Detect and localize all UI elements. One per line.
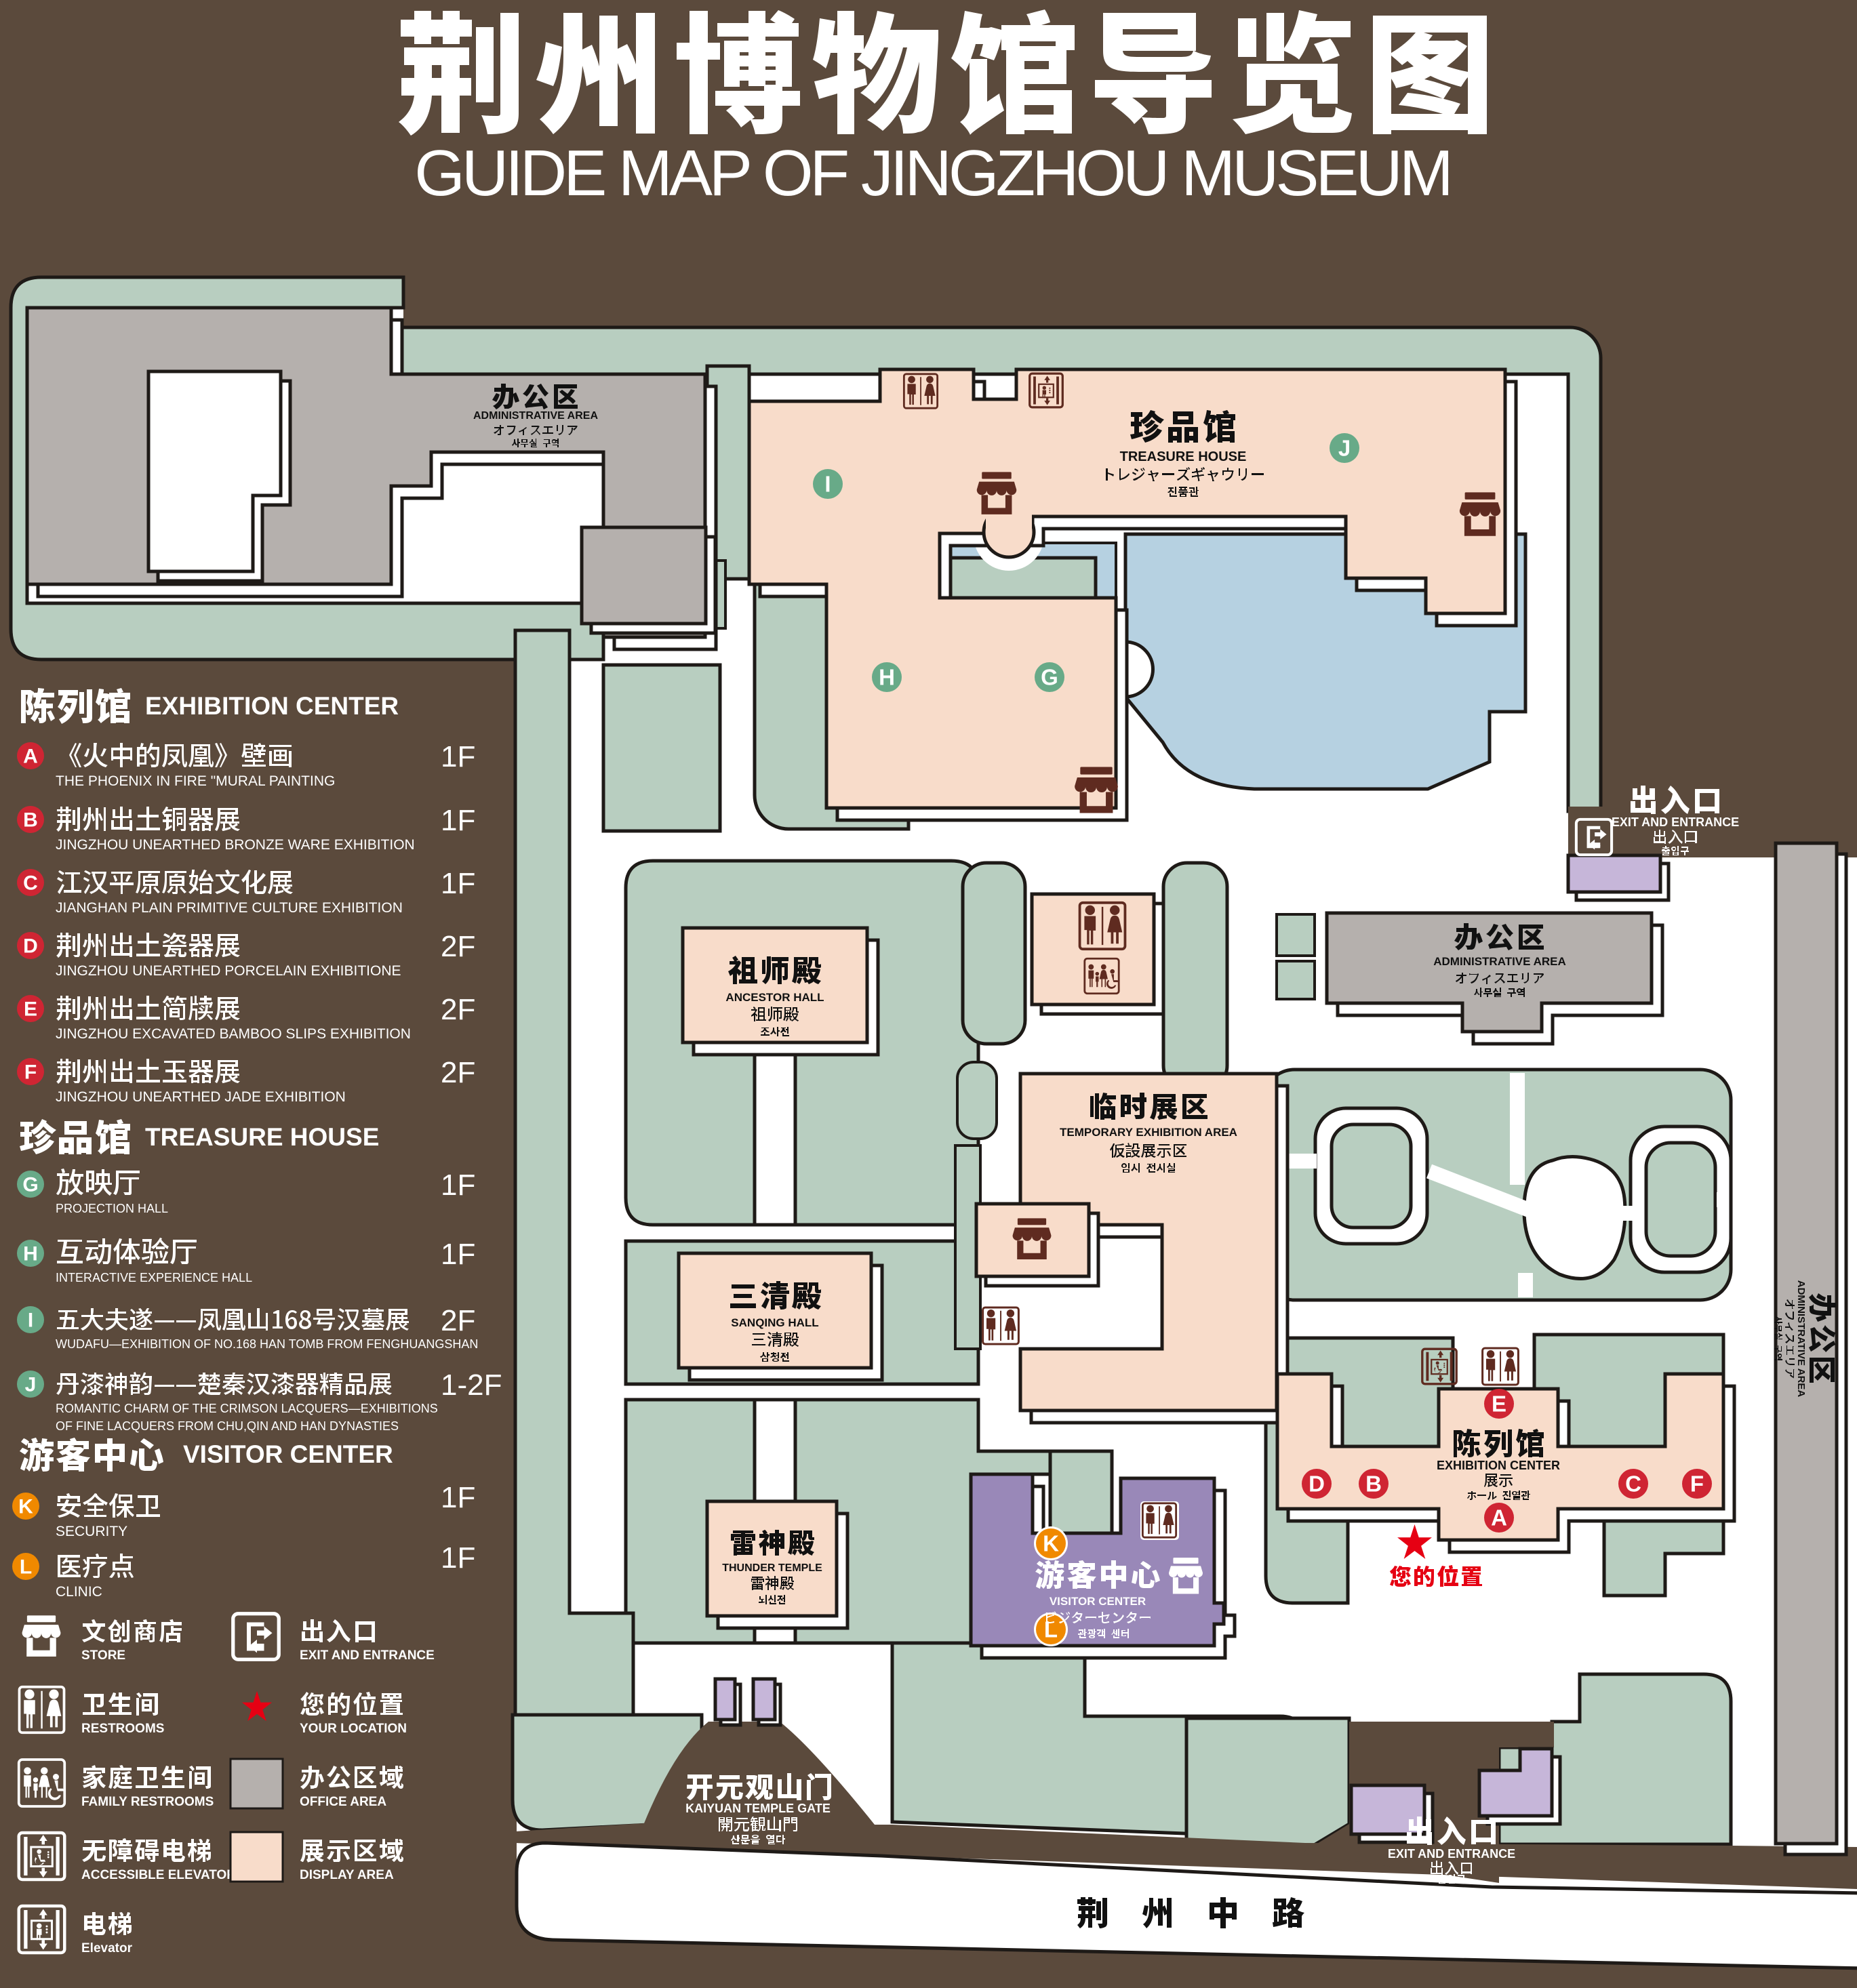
svg-text:I: I: [28, 1310, 33, 1332]
svg-text:ACCESSIBLE ELEVATOR: ACCESSIBLE ELEVATOR: [81, 1868, 236, 1882]
svg-text:D: D: [23, 935, 38, 958]
svg-text:EXHIBITION CENTER: EXHIBITION CENTER: [1437, 1459, 1560, 1472]
svg-text:SANQING HALL: SANQING HALL: [731, 1316, 818, 1329]
svg-text:J: J: [1338, 436, 1351, 461]
svg-text:1F: 1F: [441, 1169, 475, 1202]
svg-text:JINGZHOU EXCAVATED BAMBOO SLIP: JINGZHOU EXCAVATED BAMBOO SLIPS EXHIBITI…: [56, 1026, 411, 1042]
svg-text:ANCESTOR HALL: ANCESTOR HALL: [725, 991, 824, 1004]
svg-text:OFFICE AREA: OFFICE AREA: [300, 1795, 386, 1809]
svg-text:E: E: [1492, 1392, 1506, 1417]
svg-text:SECURITY: SECURITY: [56, 1524, 127, 1539]
svg-text:TREASURE HOUSE: TREASURE HOUSE: [145, 1123, 379, 1151]
svg-text:EXIT AND ENTRANCE: EXIT AND ENTRANCE: [1388, 1847, 1515, 1861]
svg-text:F: F: [1690, 1472, 1704, 1497]
svg-text:INTERACTIVE EXPERIENCE HALL: INTERACTIVE EXPERIENCE HALL: [56, 1271, 252, 1284]
svg-text:VISITOR CENTER: VISITOR CENTER: [183, 1440, 393, 1468]
svg-text:1F: 1F: [441, 1541, 475, 1575]
svg-text:1F: 1F: [441, 740, 475, 773]
svg-text:TEMPORARY EXHIBITION AREA: TEMPORARY EXHIBITION AREA: [1060, 1126, 1237, 1139]
svg-text:THE PHOENIX IN FIRE "MURAL PAI: THE PHOENIX IN FIRE "MURAL PAINTING: [56, 773, 335, 789]
svg-text:OF FINE LACQUERS FROM CHU,QIN: OF FINE LACQUERS FROM CHU,QIN AND HAN DY…: [56, 1419, 399, 1433]
svg-text:JINGZHOU UNEARTHED JADE EXHIBI: JINGZHOU UNEARTHED JADE EXHIBITION: [56, 1089, 346, 1105]
svg-text:GUIDE MAP OF JINGZHOU MUSEUM: GUIDE MAP OF JINGZHOU MUSEUM: [414, 137, 1450, 209]
svg-text:C: C: [23, 872, 38, 895]
svg-text:EXIT AND ENTRANCE: EXIT AND ENTRANCE: [300, 1648, 435, 1663]
svg-text:G: G: [1041, 665, 1058, 690]
svg-text:H: H: [879, 665, 895, 690]
svg-text:1F: 1F: [441, 804, 475, 837]
svg-text:2F: 2F: [441, 930, 475, 963]
svg-text:ADMINISTRATIVE AREA: ADMINISTRATIVE AREA: [1795, 1280, 1807, 1398]
svg-text:D: D: [1309, 1472, 1325, 1497]
svg-text:PROJECTION HALL: PROJECTION HALL: [56, 1202, 168, 1215]
svg-text:RESTROOMS: RESTROOMS: [81, 1722, 164, 1736]
svg-text:A: A: [23, 746, 38, 768]
svg-text:1F: 1F: [441, 1238, 475, 1271]
svg-text:I: I: [824, 472, 831, 497]
svg-text:A: A: [1491, 1505, 1507, 1530]
svg-text:YOUR LOCATION: YOUR LOCATION: [300, 1722, 407, 1736]
svg-text:FAMILY RESTROOMS: FAMILY RESTROOMS: [81, 1795, 214, 1809]
svg-text:L: L: [20, 1556, 32, 1579]
svg-text:WUDAFU—EXHIBITION OF NO.168 HA: WUDAFU—EXHIBITION OF NO.168 HAN TOMB FRO…: [56, 1337, 478, 1351]
svg-text:STORE: STORE: [81, 1648, 125, 1663]
svg-text:K: K: [18, 1496, 33, 1518]
svg-text:JINGZHOU UNEARTHED BRONZE WARE: JINGZHOU UNEARTHED BRONZE WARE EXHIBITIO…: [56, 837, 415, 853]
svg-text:ADMINISTRATIVE AREA: ADMINISTRATIVE AREA: [473, 410, 598, 422]
svg-text:TREASURE HOUSE: TREASURE HOUSE: [1120, 449, 1247, 464]
svg-text:F: F: [24, 1061, 37, 1084]
svg-text:E: E: [24, 998, 37, 1021]
svg-text:VISITOR CENTER: VISITOR CENTER: [1050, 1595, 1146, 1608]
svg-text:L: L: [1044, 1617, 1058, 1642]
svg-text:JINGZHOU UNEARTHED PORCELAIN E: JINGZHOU UNEARTHED PORCELAIN EXHIBITIONE: [56, 963, 401, 979]
svg-text:B: B: [23, 809, 38, 832]
svg-text:JIANGHAN PLAIN PRIMITIVE CULTU: JIANGHAN PLAIN PRIMITIVE CULTURE EXHIBIT…: [56, 900, 403, 916]
svg-text:DISPLAY AREA: DISPLAY AREA: [300, 1868, 394, 1882]
svg-text:ROMANTIC CHARM OF THE CRIMSON: ROMANTIC CHARM OF THE CRIMSON LACQUERS—E…: [56, 1402, 438, 1415]
svg-text:EXIT AND ENTRANCE: EXIT AND ENTRANCE: [1612, 815, 1739, 829]
svg-text:2F: 2F: [441, 1056, 475, 1089]
svg-text:1F: 1F: [441, 1481, 475, 1514]
svg-text:ADMINISTRATIVE AREA: ADMINISTRATIVE AREA: [1433, 955, 1566, 968]
svg-text:CLINIC: CLINIC: [56, 1584, 102, 1600]
svg-text:C: C: [1625, 1472, 1641, 1497]
svg-text:J: J: [25, 1374, 37, 1396]
svg-text:G: G: [22, 1174, 38, 1196]
svg-text:2F: 2F: [441, 993, 475, 1026]
svg-text:1-2F: 1-2F: [441, 1368, 502, 1402]
svg-text:2F: 2F: [441, 1304, 475, 1337]
svg-text:B: B: [1365, 1472, 1382, 1497]
svg-text:K: K: [1043, 1531, 1059, 1556]
svg-text:H: H: [23, 1243, 38, 1265]
svg-text:THUNDER TEMPLE: THUNDER TEMPLE: [722, 1562, 822, 1574]
svg-text:1F: 1F: [441, 867, 475, 900]
svg-text:Elevator: Elevator: [81, 1941, 133, 1955]
svg-text:KAIYUAN TEMPLE GATE: KAIYUAN TEMPLE GATE: [685, 1802, 831, 1815]
svg-text:EXHIBITION CENTER: EXHIBITION CENTER: [145, 692, 399, 720]
